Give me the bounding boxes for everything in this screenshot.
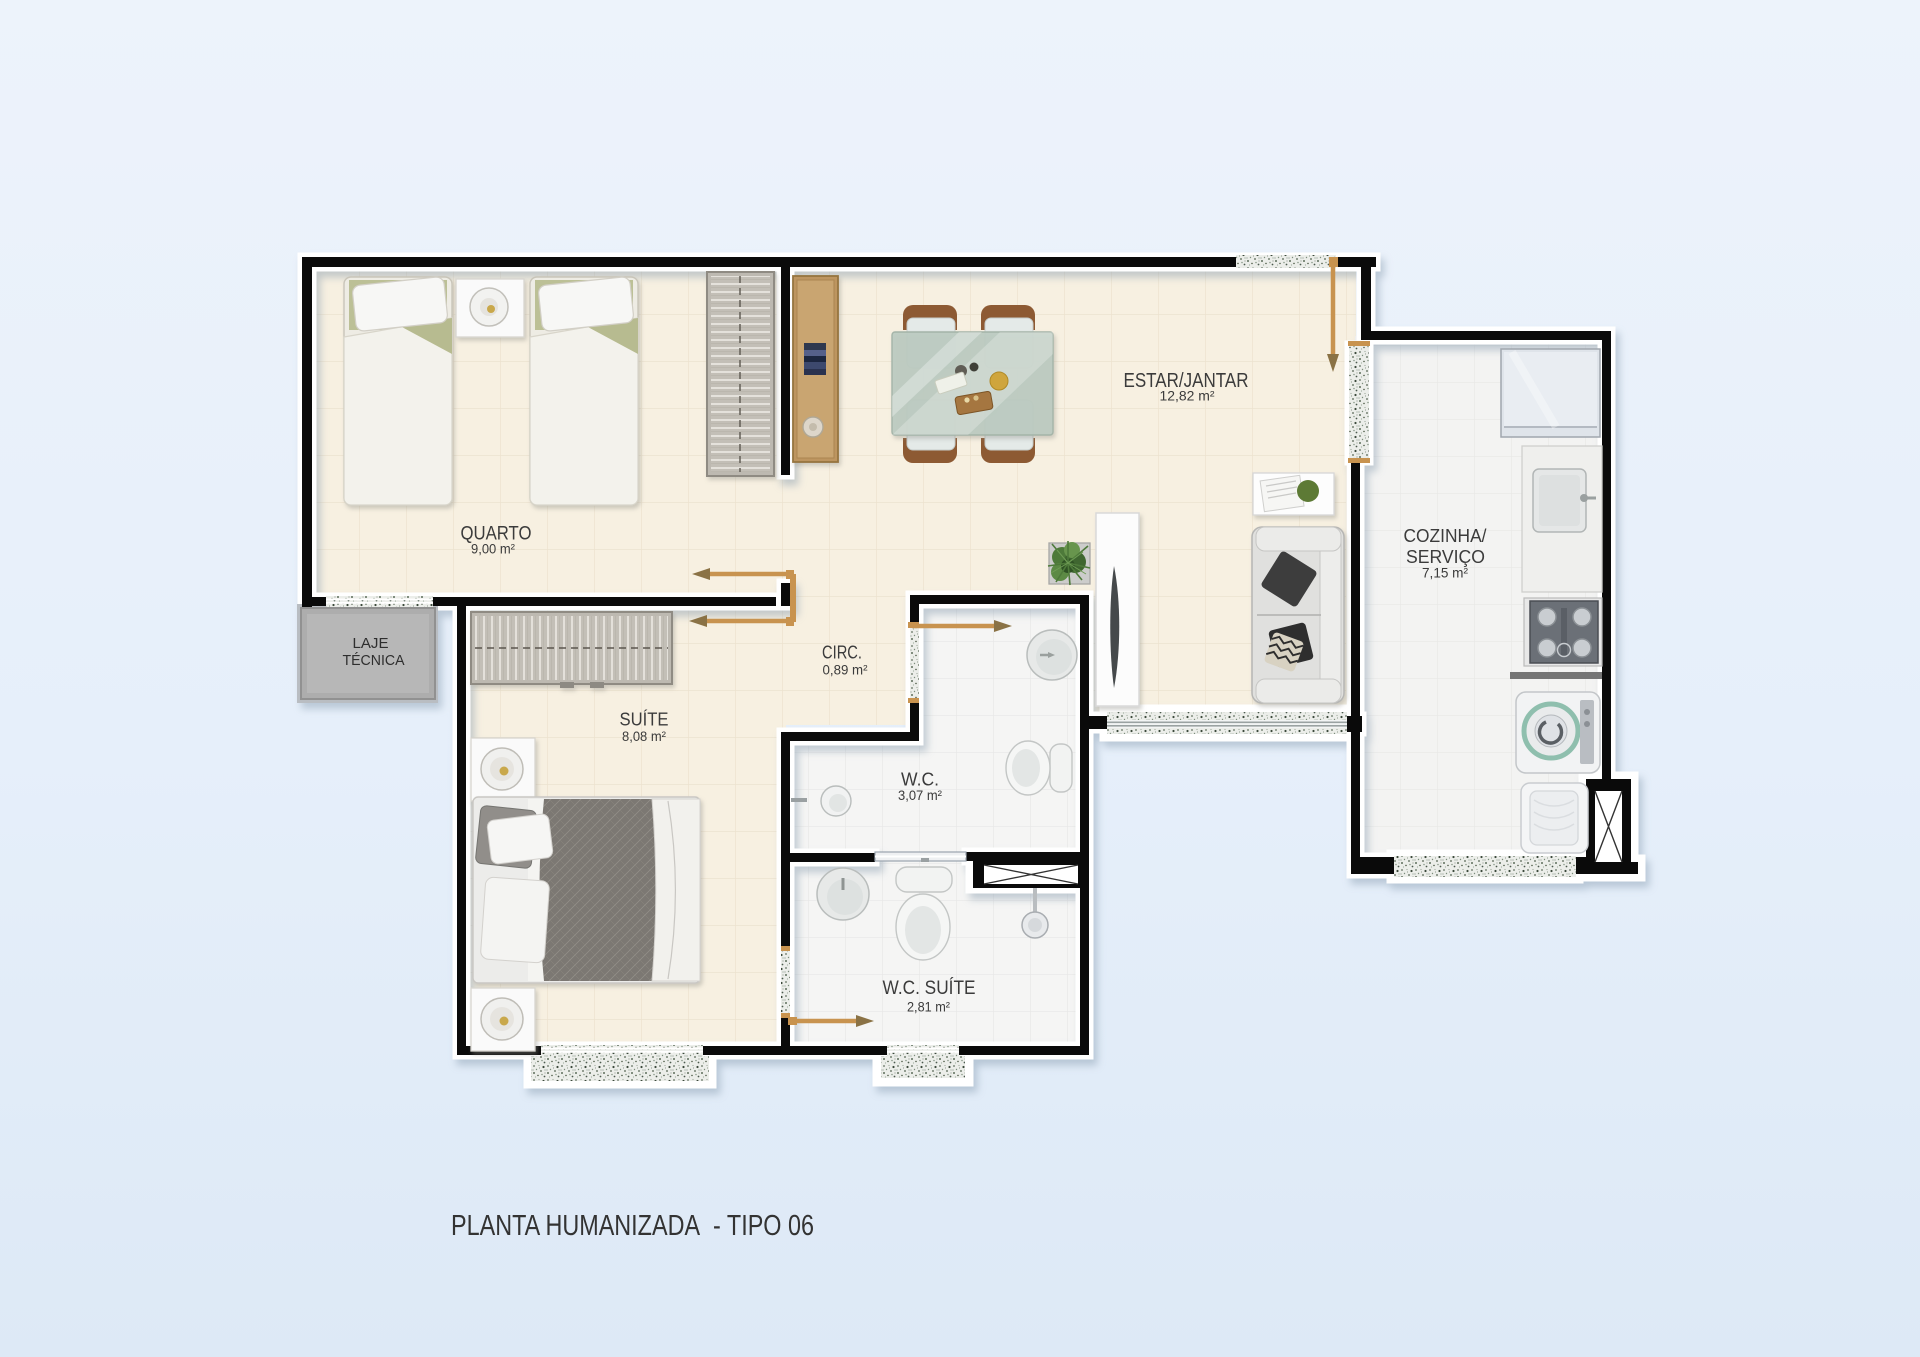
svg-text:SUÍTE: SUÍTE bbox=[620, 710, 669, 730]
svg-text:9,00 m²: 9,00 m² bbox=[471, 541, 515, 557]
svg-text:LAJE: LAJE bbox=[353, 636, 389, 652]
svg-text:8,08 m²: 8,08 m² bbox=[622, 728, 666, 744]
svg-text:2,81 m²: 2,81 m² bbox=[907, 999, 950, 1015]
svg-text:TÉCNICA: TÉCNICA bbox=[343, 652, 405, 669]
svg-text:CIRC.: CIRC. bbox=[822, 643, 862, 663]
svg-text:COZINHA/: COZINHA/ bbox=[1404, 526, 1487, 546]
svg-text:PLANTA HUMANIZADA - TIPO 06: PLANTA HUMANIZADA - TIPO 06 bbox=[451, 1210, 814, 1242]
svg-text:0,89 m²: 0,89 m² bbox=[823, 661, 868, 677]
svg-text:W.C. SUÍTE: W.C. SUÍTE bbox=[883, 976, 976, 999]
svg-text:3,07 m²: 3,07 m² bbox=[898, 787, 942, 803]
svg-text:7,15 m²: 7,15 m² bbox=[1422, 565, 1468, 581]
svg-text:12,82 m²: 12,82 m² bbox=[1160, 388, 1215, 404]
